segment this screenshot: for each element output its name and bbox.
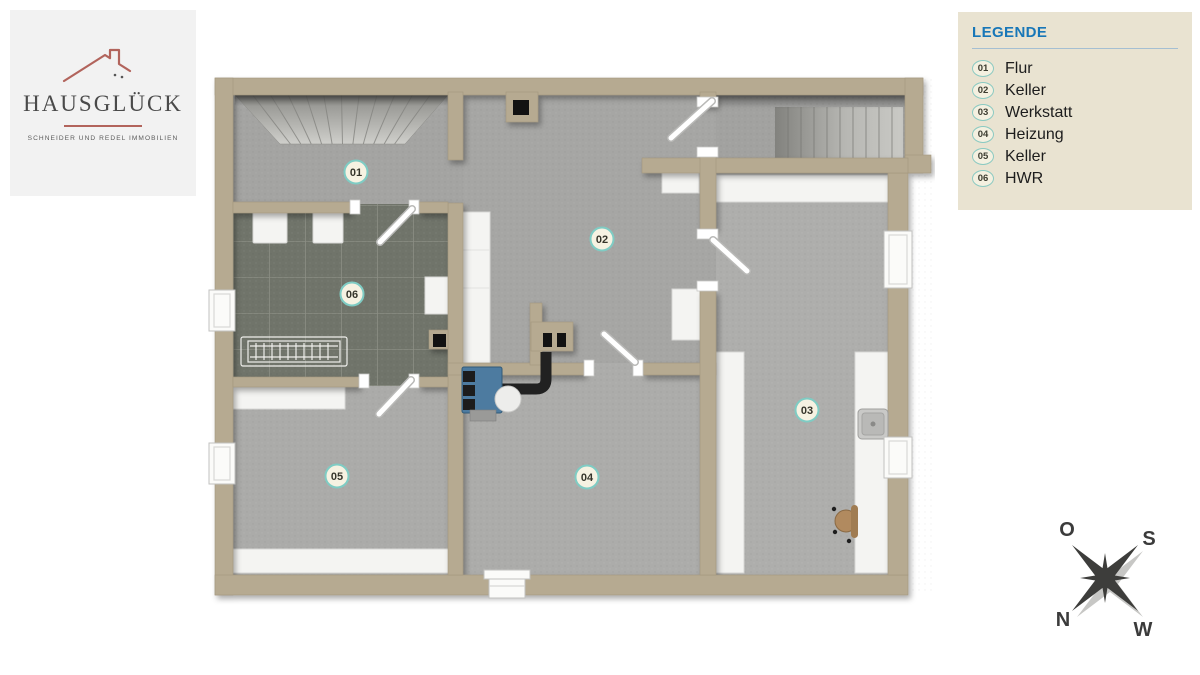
svg-text:04: 04 xyxy=(581,472,594,484)
floorplan: 01 02 03 04 05 06 xyxy=(205,65,935,605)
room-badge-02: 02 xyxy=(591,228,614,251)
sink-icon xyxy=(858,409,888,439)
wall-01-06-a xyxy=(233,202,350,213)
legend-item-number-badge: 05 xyxy=(972,148,994,165)
wall-01-02 xyxy=(448,92,463,160)
flue-icon xyxy=(543,333,552,347)
legend-item-number-badge: 06 xyxy=(972,170,994,187)
wall-left xyxy=(215,78,233,595)
shelf-room02-a xyxy=(662,172,699,193)
wall-under-stairs xyxy=(642,158,908,173)
compass-rose-icon: O S N W xyxy=(1038,512,1172,652)
legend-divider xyxy=(972,48,1178,49)
compass-label-w: W xyxy=(1134,619,1153,641)
logo-divider xyxy=(64,125,142,127)
compass-label-s: S xyxy=(1142,528,1155,550)
window-icon-right-1 xyxy=(884,231,912,288)
svg-text:01: 01 xyxy=(350,167,362,179)
legend-item-label: Keller xyxy=(1005,148,1046,165)
legend-item-label: HWR xyxy=(1005,170,1043,187)
flue-icon xyxy=(433,334,446,347)
legend-item: 05 Keller xyxy=(972,148,1178,165)
shelf-room02-b xyxy=(672,289,700,340)
wall-06-05-b xyxy=(419,377,448,387)
shelf-room05-top xyxy=(233,387,345,409)
shelf-room05-bottom xyxy=(233,549,452,573)
window-icon-bottom xyxy=(484,570,530,598)
legend-item: 02 Keller xyxy=(972,82,1178,99)
svg-text:03: 03 xyxy=(801,405,813,417)
roof-icon xyxy=(58,48,148,84)
window-icon-left-1 xyxy=(209,290,235,331)
flue-icon xyxy=(557,333,566,347)
wall-right-step xyxy=(905,155,931,173)
wall-06-05-east xyxy=(448,203,463,575)
legend-item: 03 Werkstatt xyxy=(972,104,1178,121)
compass-label-n: N xyxy=(1056,609,1070,631)
compass-label-o: O xyxy=(1059,519,1075,541)
legend-item-label: Flur xyxy=(1005,60,1033,77)
room-badge-06: 06 xyxy=(341,283,364,306)
wall-top xyxy=(215,78,923,95)
legend-item-label: Heizung xyxy=(1005,126,1064,143)
flue-icon xyxy=(513,100,529,115)
window-icon-left-2 xyxy=(209,443,235,484)
company-logo-card: HAUSGLÜCK SCHNEIDER UND REDEL IMMOBILIEN xyxy=(10,10,196,196)
compass-rose: O S N W xyxy=(1038,512,1172,652)
legend-item-number-badge: 04 xyxy=(972,126,994,143)
wall-bottom xyxy=(215,575,908,595)
washer-icon xyxy=(253,210,287,243)
wall-02-03-c xyxy=(700,291,716,575)
counter-room03-right xyxy=(855,352,888,573)
room-badge-05: 05 xyxy=(326,465,349,488)
svg-text:02: 02 xyxy=(596,234,608,246)
shelf-room03-left xyxy=(716,352,744,573)
svg-text:06: 06 xyxy=(346,289,358,301)
room-badge-03: 03 xyxy=(796,399,819,422)
legend-title: LEGENDE xyxy=(972,24,1178,41)
legend-item-label: Werkstatt xyxy=(1005,104,1072,121)
legend-item-label: Keller xyxy=(1005,82,1046,99)
legend-item: 06 HWR xyxy=(972,170,1178,187)
legend-item: 01 Flur xyxy=(972,60,1178,77)
legend-item: 04 Heizung xyxy=(972,126,1178,143)
workbench-room03-top xyxy=(716,175,888,202)
room-badge-04: 04 xyxy=(576,466,599,489)
window-icon-right-2 xyxy=(884,437,912,478)
company-name: HAUSGLÜCK xyxy=(10,91,196,117)
cabinet-room06 xyxy=(425,277,448,314)
legend-panel: LEGENDE 01 Flur 02 Keller 03 Werkstatt 0… xyxy=(958,12,1192,210)
legend-item-number-badge: 03 xyxy=(972,104,994,121)
wall-02-03-b xyxy=(700,157,716,229)
company-tagline: SCHNEIDER UND REDEL IMMOBILIEN xyxy=(10,135,196,142)
dryer-icon xyxy=(313,210,343,243)
legend-item-number-badge: 02 xyxy=(972,82,994,99)
wall-01-06-b xyxy=(419,202,448,213)
room-badge-01: 01 xyxy=(345,161,368,184)
floorplan-drawing: 01 02 03 04 05 06 xyxy=(205,65,935,605)
svg-text:05: 05 xyxy=(331,471,343,483)
wall-06-05-a xyxy=(233,377,359,387)
legend-item-number-badge: 01 xyxy=(972,60,994,77)
